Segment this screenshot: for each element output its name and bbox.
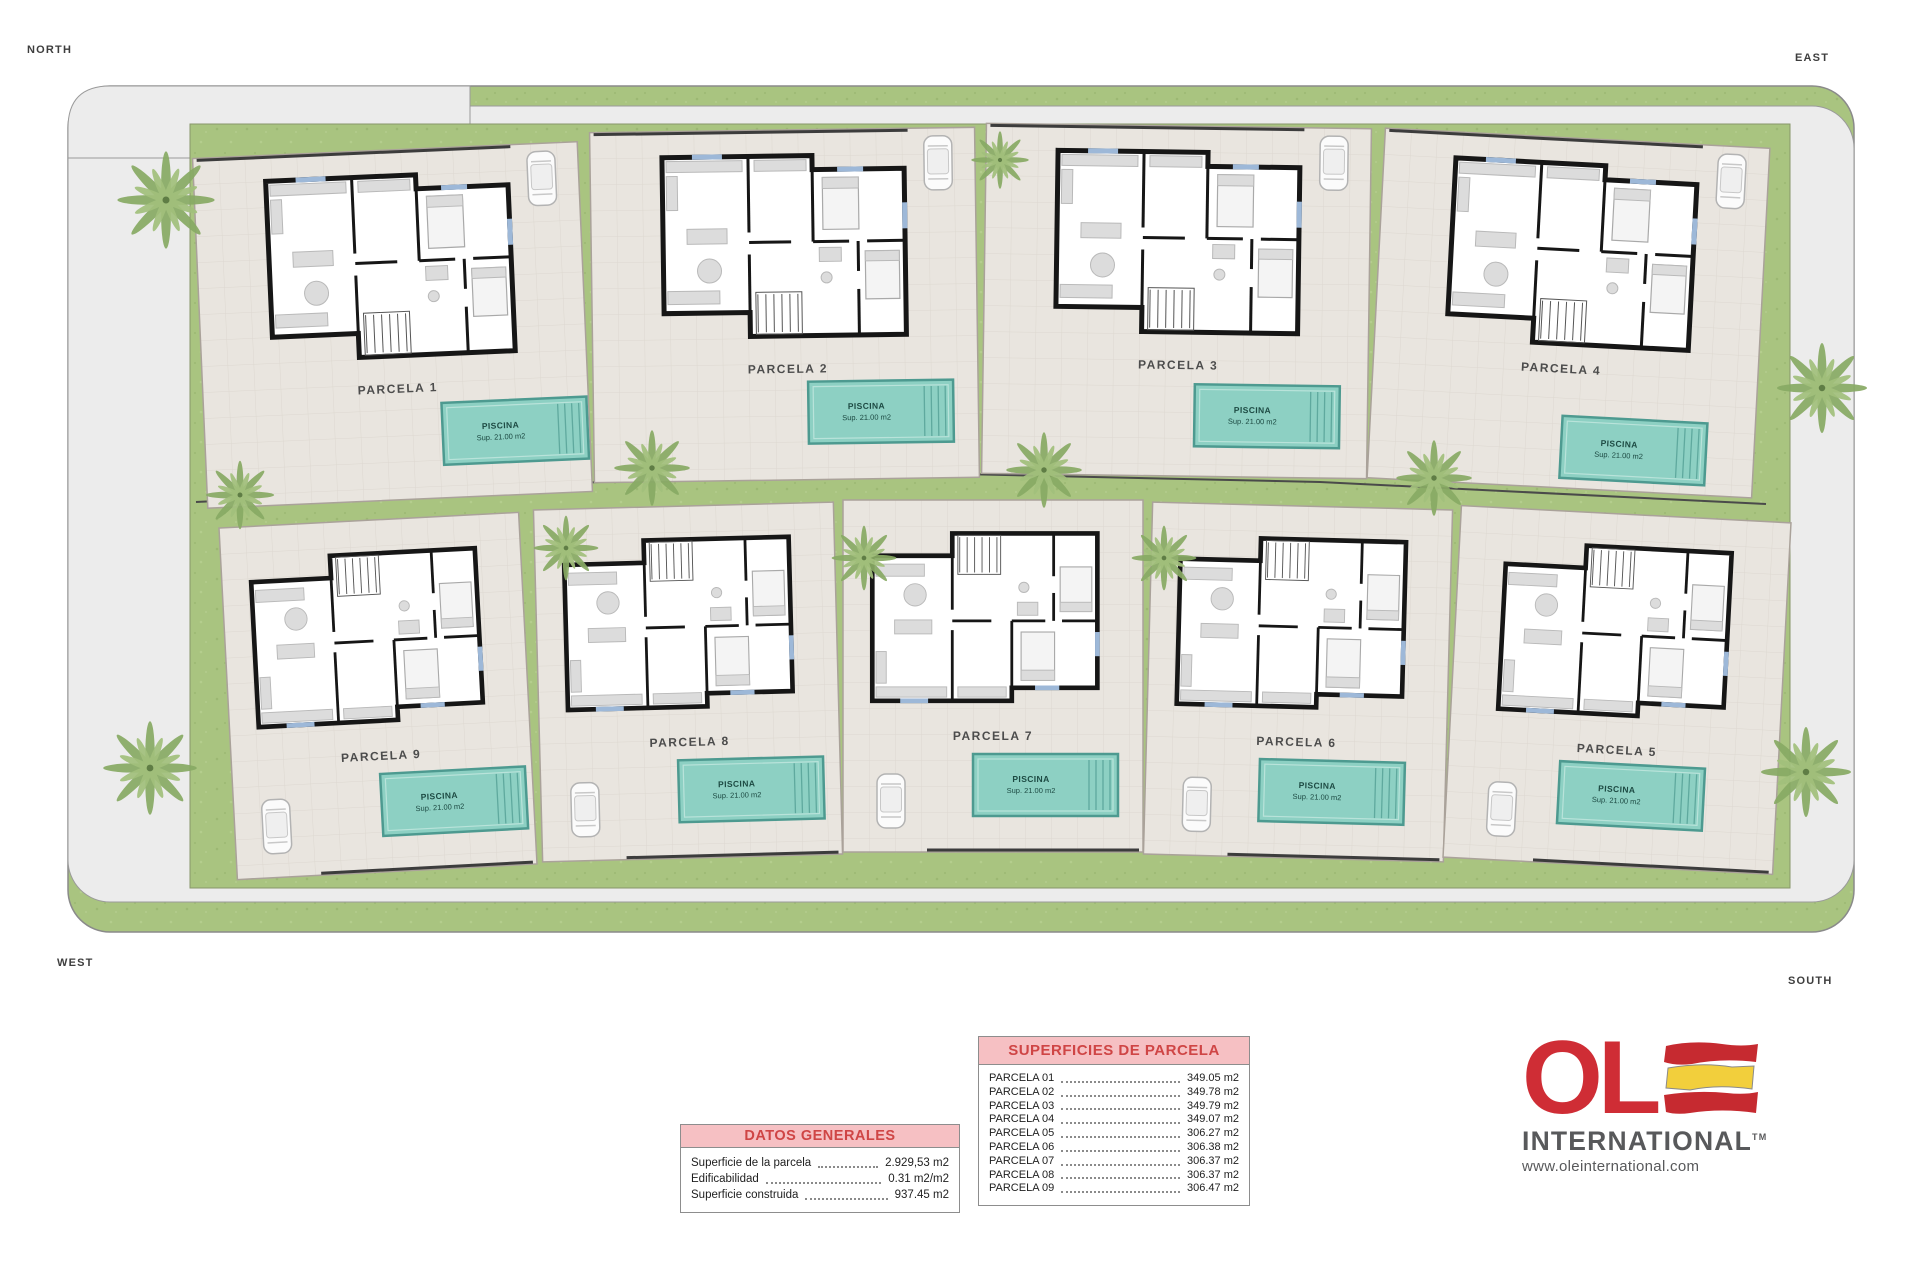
villa-floorplan: [1498, 541, 1734, 722]
table-row: PARCELA 07306.37 m2: [989, 1155, 1239, 1169]
table-row: PARCELA 08306.37 m2: [989, 1169, 1239, 1183]
ole-international-logo: OL INTERNATIONALTM www.oleinternational.…: [1522, 1038, 1812, 1175]
row-label: Superficie construida: [691, 1187, 798, 1203]
palm-tree: [832, 526, 897, 591]
pool-label: PISCINA: [718, 778, 756, 789]
pool-label: PISCINA: [1299, 780, 1337, 791]
row-value: 349.78 m2: [1187, 1086, 1239, 1100]
pool-shape: [1258, 759, 1405, 825]
table-row: PARCELA 04349.07 m2: [989, 1113, 1239, 1127]
datos-generales-body: Superficie de la parcela2.929,53 m2Edifi…: [681, 1148, 959, 1212]
table-row: PARCELA 06306.38 m2: [989, 1141, 1239, 1155]
parcel-7: PARCELA 7 PISCINA Sup. 21.00 m2: [843, 500, 1143, 852]
row-value: 306.37 m2: [1187, 1155, 1239, 1169]
parcel-9: PARCELA 9 PISCINA Sup. 21.00 m2: [219, 512, 537, 879]
parcel-label: PARCELA 8: [649, 734, 730, 750]
pool-label: PISCINA: [1598, 783, 1636, 795]
parcel-3: PARCELA 3 PISCINA Sup. 21.00 m2: [982, 123, 1372, 478]
superficies-table: SUPERFICIES DE PARCELA PARCELA 01349.05 …: [978, 1036, 1250, 1206]
palm-tree: [1761, 727, 1851, 817]
villa-floorplan: [1177, 536, 1409, 712]
table-row: PARCELA 09306.47 m2: [989, 1182, 1239, 1196]
row-label: PARCELA 09: [989, 1182, 1054, 1196]
parcel-5: PARCELA 5 PISCINA Sup. 21.00 m2: [1443, 506, 1791, 875]
pool: PISCINA Sup. 21.00 m2: [1258, 759, 1405, 825]
palm-tree: [971, 131, 1029, 189]
logo-tm: TM: [1752, 1132, 1767, 1142]
car: [1486, 781, 1517, 836]
row-label: PARCELA 07: [989, 1155, 1054, 1169]
row-value: 349.79 m2: [1187, 1100, 1239, 1114]
row-value: 937.45 m2: [895, 1187, 949, 1203]
compass-south: SOUTH: [1788, 975, 1833, 987]
dotted-leader: [1061, 1122, 1180, 1124]
dotted-leader: [1061, 1150, 1180, 1152]
row-value: 349.07 m2: [1187, 1113, 1239, 1127]
pool-shape: [678, 756, 825, 822]
pool-label: PISCINA: [420, 790, 458, 802]
villa-floorplan: [564, 537, 796, 713]
compass-north: NORTH: [27, 44, 72, 56]
row-label: PARCELA 08: [989, 1169, 1054, 1183]
row-value: 306.27 m2: [1187, 1127, 1239, 1141]
pool-shape: [1557, 761, 1705, 831]
table-row: PARCELA 03349.79 m2: [989, 1100, 1239, 1114]
row-label: PARCELA 02: [989, 1086, 1054, 1100]
pool-area-label: Sup. 21.00 m2: [712, 790, 761, 800]
dotted-leader: [805, 1198, 887, 1200]
palm-tree: [206, 461, 274, 529]
row-value: 2.929,53 m2: [885, 1155, 949, 1171]
logo-url: www.oleinternational.com: [1522, 1158, 1812, 1175]
palm-tree: [103, 721, 197, 815]
parcel-label: PARCELA 3: [1138, 357, 1218, 372]
pool-shape: [380, 766, 528, 836]
parcel-4: PARCELA 4 PISCINA Sup. 21.00 m2: [1367, 128, 1770, 498]
palm-tree: [117, 151, 214, 248]
table-row: PARCELA 01349.05 m2: [989, 1072, 1239, 1086]
pool-area-label: Sup. 21.00 m2: [1292, 792, 1341, 802]
pool-shape: [441, 397, 589, 465]
pool: PISCINA Sup. 21.00 m2: [380, 766, 528, 836]
palm-tree: [534, 516, 599, 581]
pool: PISCINA Sup. 21.00 m2: [441, 397, 589, 465]
dotted-leader: [1061, 1095, 1180, 1097]
pool-shape: [973, 754, 1118, 816]
dotted-leader: [1061, 1177, 1180, 1179]
table-row: PARCELA 05306.27 m2: [989, 1127, 1239, 1141]
pool: PISCINA Sup. 21.00 m2: [1557, 761, 1705, 831]
pool: PISCINA Sup. 21.00 m2: [1559, 416, 1707, 486]
parcel-2: PARCELA 2 PISCINA Sup. 21.00 m2: [590, 127, 980, 482]
pool-area-label: Sup. 21.00 m2: [1228, 417, 1277, 427]
site-plan: PARCELA 1 PISCINA Sup. 21.00 m2 PARCELA …: [0, 0, 1920, 1010]
pool-shape: [1194, 384, 1340, 448]
pool-label: PISCINA: [482, 420, 520, 432]
row-value: 306.37 m2: [1187, 1169, 1239, 1183]
car: [571, 782, 600, 837]
car: [527, 151, 557, 206]
spanish-flag-icon: [1662, 1040, 1762, 1118]
palm-tree: [1006, 432, 1082, 508]
palm-tree: [1396, 440, 1472, 516]
pool-area-label: Sup. 21.00 m2: [1007, 786, 1056, 795]
table-row: Superficie de la parcela2.929,53 m2: [691, 1155, 949, 1171]
dotted-leader: [766, 1182, 882, 1184]
parcel-8: PARCELA 8 PISCINA Sup. 21.00 m2: [533, 502, 842, 862]
row-value: 306.47 m2: [1187, 1182, 1239, 1196]
parcel-label: PARCELA 6: [1256, 734, 1337, 750]
pool: PISCINA Sup. 21.00 m2: [973, 754, 1118, 816]
logo-ol-text: OL: [1522, 1038, 1656, 1118]
car: [1320, 136, 1349, 190]
table-row: Superficie construida937.45 m2: [691, 1187, 949, 1203]
pool-shape: [808, 380, 954, 444]
datos-generales-title: DATOS GENERALES: [681, 1125, 959, 1148]
parcel-1: PARCELA 1 PISCINA Sup. 21.00 m2: [193, 142, 593, 508]
car: [924, 136, 953, 190]
row-label: Edificabilidad: [691, 1171, 759, 1187]
parcel-label: PARCELA 7: [953, 729, 1033, 743]
dotted-leader: [1061, 1081, 1180, 1083]
pool-label: PISCINA: [1012, 774, 1049, 784]
row-value: 0.31 m2/m2: [888, 1171, 949, 1187]
pool-label: PISCINA: [848, 401, 885, 412]
pool-label: PISCINA: [1234, 405, 1271, 416]
pool: PISCINA Sup. 21.00 m2: [678, 756, 825, 822]
palm-tree: [614, 430, 690, 506]
villa-floorplan: [662, 152, 909, 338]
parcel-label: PARCELA 2: [748, 361, 828, 376]
row-label: Superficie de la parcela: [691, 1155, 811, 1171]
logo-international-text: INTERNATIONAL: [1522, 1126, 1752, 1156]
row-label: PARCELA 03: [989, 1100, 1054, 1114]
row-value: 306.38 m2: [1187, 1141, 1239, 1155]
pool: PISCINA Sup. 21.00 m2: [1194, 384, 1340, 448]
compass-east: EAST: [1795, 52, 1829, 64]
row-label: PARCELA 04: [989, 1113, 1054, 1127]
row-label: PARCELA 05: [989, 1127, 1054, 1141]
row-label: PARCELA 01: [989, 1072, 1054, 1086]
car: [1716, 154, 1747, 209]
logo-international-row: INTERNATIONALTM: [1522, 1126, 1812, 1157]
car: [261, 799, 292, 854]
pool-shape: [1559, 416, 1707, 486]
compass-west: WEST: [57, 957, 94, 969]
dotted-leader: [818, 1166, 878, 1168]
villa-floorplan: [872, 533, 1099, 703]
logo-top-row: OL: [1522, 1038, 1812, 1118]
pool: PISCINA Sup. 21.00 m2: [808, 380, 954, 444]
pool-label: PISCINA: [1600, 438, 1638, 450]
row-value: 349.05 m2: [1187, 1072, 1239, 1086]
dotted-leader: [1061, 1191, 1180, 1193]
superficies-title: SUPERFICIES DE PARCELA: [979, 1037, 1249, 1065]
villa-floorplan: [266, 168, 518, 361]
row-label: PARCELA 06: [989, 1141, 1054, 1155]
datos-generales-table: DATOS GENERALES Superficie de la parcela…: [680, 1124, 960, 1213]
pool-area-label: Sup. 21.00 m2: [842, 413, 891, 423]
villa-floorplan: [1056, 148, 1303, 334]
dotted-leader: [1061, 1136, 1180, 1138]
dotted-leader: [1061, 1164, 1180, 1166]
superficies-body: PARCELA 01349.05 m2PARCELA 02349.78 m2PA…: [979, 1065, 1249, 1205]
car: [877, 774, 905, 828]
palm-tree: [1777, 343, 1867, 433]
palm-tree: [1132, 526, 1197, 591]
table-row: PARCELA 02349.78 m2: [989, 1086, 1239, 1100]
table-row: Edificabilidad0.31 m2/m2: [691, 1171, 949, 1187]
dotted-leader: [1061, 1108, 1180, 1110]
car: [1182, 777, 1211, 832]
